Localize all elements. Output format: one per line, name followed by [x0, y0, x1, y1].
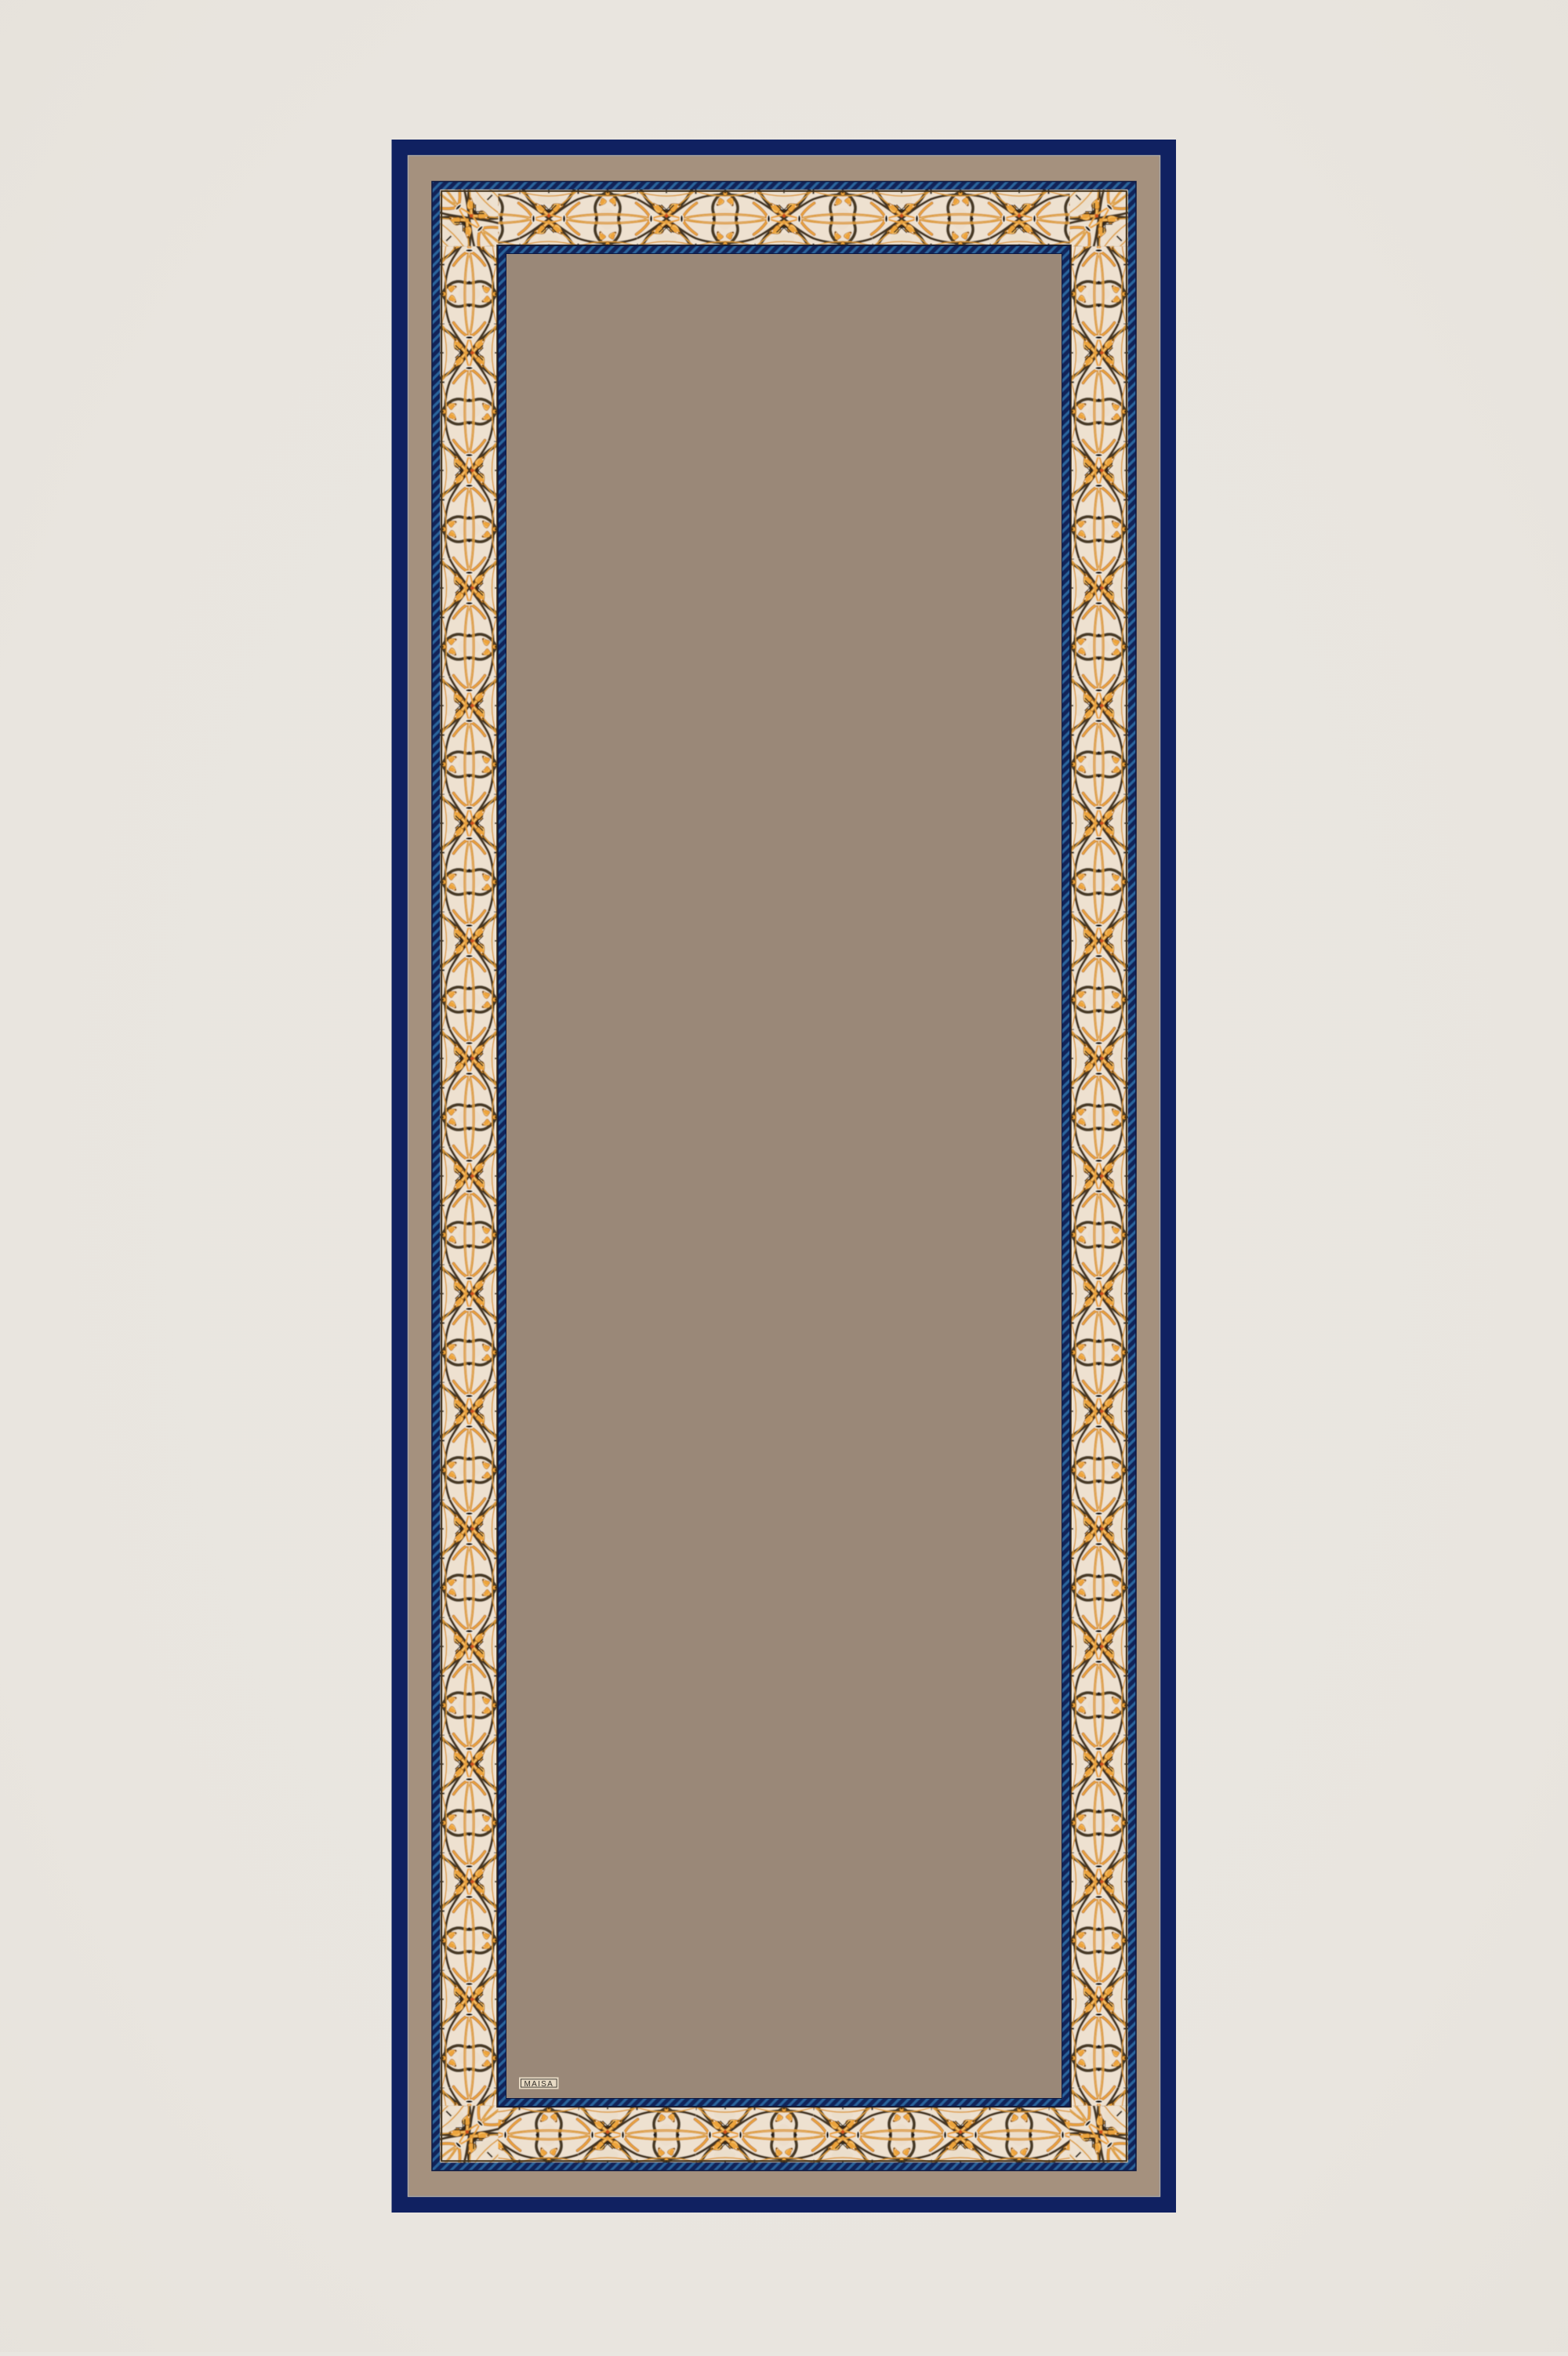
svg-text:MAISA: MAISA	[524, 2080, 554, 2089]
